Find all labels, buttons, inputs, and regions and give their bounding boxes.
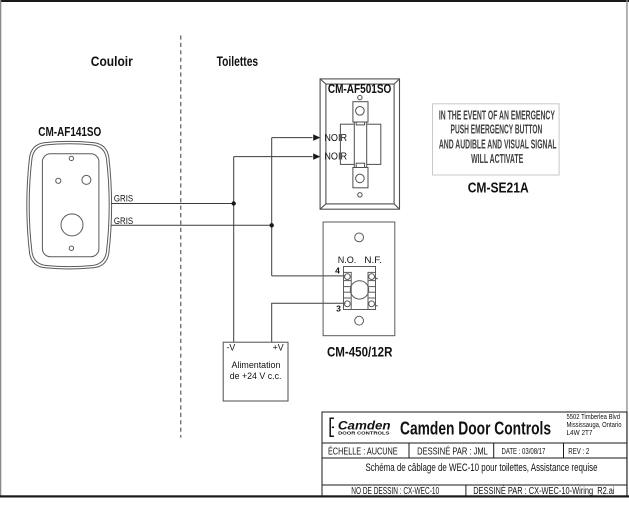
svg-text:L4W 2T7: L4W 2T7 — [567, 430, 593, 437]
svg-text:Mississauga, Ontario: Mississauga, Ontario — [567, 422, 622, 429]
svg-text:PUSH EMERGENCY BUTTON: PUSH EMERGENCY BUTTON — [451, 123, 543, 137]
svg-text:DESSINÉ PAR : JML: DESSINÉ PAR : JML — [417, 446, 488, 457]
svg-text:GRIS: GRIS — [114, 216, 133, 226]
svg-text:NOIR: NOIR — [324, 152, 347, 163]
svg-text:DATE : 03/08/17: DATE : 03/08/17 — [502, 447, 546, 456]
svg-text:NOIR: NOIR — [324, 133, 347, 144]
svg-text:CM-AF501SO: CM-AF501SO — [328, 81, 392, 96]
svg-text:WILL ACTIVATE: WILL ACTIVATE — [471, 152, 523, 166]
svg-text:Schéma de câblage de WEC-10 po: Schéma de câblage de WEC-10 pour toilett… — [366, 462, 598, 474]
svg-text:NO DE DESSIN : CX-WEC-10: NO DE DESSIN : CX-WEC-10 — [351, 486, 439, 497]
svg-text:DOOR CONTROLS: DOOR CONTROLS — [338, 431, 389, 436]
svg-text:REV : 2: REV : 2 — [568, 447, 589, 456]
svg-text:Alimentation: Alimentation — [232, 360, 281, 371]
svg-text:Camden Door Controls: Camden Door Controls — [400, 417, 551, 438]
svg-text:N.O.: N.O. — [338, 254, 357, 265]
svg-text:IN THE EVENT OF AN EMERGENCY: IN THE EVENT OF AN EMERGENCY — [439, 108, 555, 122]
svg-text:5502 Timberlea Blvd: 5502 Timberlea Blvd — [567, 414, 621, 421]
svg-text:N.F.: N.F. — [364, 254, 382, 265]
svg-text:DESSINÉ PAR : CX-WEC-10-Wiring: DESSINÉ PAR : CX-WEC-10-Wiring_R2.ai — [473, 486, 614, 497]
svg-text:Toilettes: Toilettes — [217, 53, 259, 69]
svg-text:CM-450/12R: CM-450/12R — [327, 343, 393, 359]
svg-text:+V: +V — [273, 343, 284, 353]
svg-text:3: 3 — [336, 304, 341, 314]
svg-text:de +24 V c.c.: de +24 V c.c. — [230, 371, 282, 382]
svg-text:ÉCHELLE : AUCUNE: ÉCHELLE : AUCUNE — [328, 446, 398, 457]
svg-text:AND AUDIBLE AND VISUAL SIGNAL: AND AUDIBLE AND VISUAL SIGNAL — [439, 138, 557, 152]
svg-text:CM-SE21A: CM-SE21A — [468, 180, 529, 197]
svg-text:Couloir: Couloir — [91, 53, 133, 69]
svg-text:CM-AF141SO: CM-AF141SO — [38, 124, 101, 139]
svg-text:-V: -V — [227, 343, 236, 353]
svg-text:GRIS: GRIS — [114, 193, 133, 203]
svg-text:4: 4 — [335, 266, 340, 276]
